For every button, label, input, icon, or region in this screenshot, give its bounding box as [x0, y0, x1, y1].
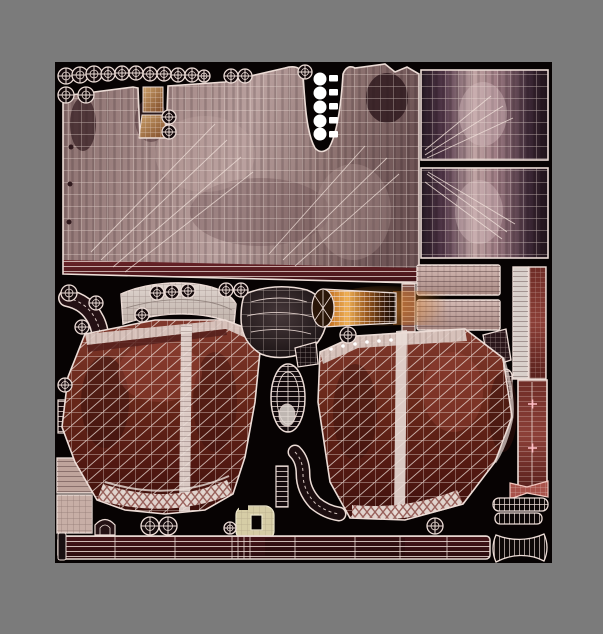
rivet-button — [171, 68, 185, 82]
layer-shirt — [63, 64, 419, 283]
rivet-button — [157, 67, 171, 81]
waist-dot — [353, 342, 357, 346]
strap-light-rows — [513, 267, 528, 379]
rivet-button — [224, 522, 236, 534]
layer-sleeves — [421, 70, 548, 258]
rivet-button — [185, 68, 199, 82]
oval-bottom-pad — [279, 404, 295, 426]
rivet-button — [238, 69, 252, 83]
rivet-button — [298, 65, 312, 79]
placket-buttonhole — [329, 103, 338, 110]
rivet-button — [78, 87, 94, 103]
orange-fade — [393, 291, 449, 325]
buckle-gap — [239, 503, 248, 510]
placket-buttonhole — [329, 117, 338, 124]
layer-shorts-left — [62, 320, 260, 514]
rivet-button — [165, 285, 179, 299]
buckle-grid — [236, 506, 274, 540]
capsule-strip-cols — [495, 513, 542, 524]
placket-button — [314, 73, 327, 86]
layer-right-strips — [510, 267, 548, 499]
layer-orange-arm — [312, 286, 449, 327]
right-leg-tri-grid — [318, 329, 512, 520]
uv-atlas-svg — [55, 62, 552, 563]
rivet-button — [159, 517, 177, 535]
placket-button — [314, 87, 327, 100]
rivet-button — [75, 320, 89, 334]
rivet-button — [86, 66, 102, 82]
barrel-piece-cols — [493, 534, 547, 562]
shirt-button-dot — [68, 182, 73, 187]
rivet-button — [234, 283, 248, 297]
rivet-button — [89, 296, 103, 310]
left-leg-seam-rungs — [179, 325, 192, 512]
left-grid-block-grid — [57, 495, 92, 533]
notch-piece-top-grid — [143, 87, 163, 112]
placket-buttonhole — [329, 89, 338, 96]
placket-buttonhole — [329, 75, 338, 82]
rivet-button — [58, 87, 74, 103]
rivet-button — [162, 125, 176, 139]
rivet-button — [219, 283, 233, 297]
placket-button — [314, 101, 327, 114]
arch-piece — [95, 520, 115, 536]
shirt-button-dot — [67, 220, 72, 225]
waist-dot — [365, 340, 369, 344]
rivet-button — [198, 70, 210, 82]
placket-buttonhole — [329, 131, 338, 138]
rivet-button — [224, 69, 238, 83]
rivet-button — [150, 286, 164, 300]
layer-belt — [58, 533, 490, 560]
rivet-button — [61, 285, 77, 301]
placket-button — [314, 115, 327, 128]
layer-buckle — [236, 503, 274, 540]
cuff-band-ticks — [417, 265, 500, 295]
layer-oval-piece — [271, 364, 305, 432]
waist-dot — [341, 344, 345, 348]
rivet-button — [427, 518, 443, 534]
uv-texture-canvas — [55, 62, 552, 563]
rivet-button — [141, 517, 159, 535]
rivet-button — [101, 67, 115, 81]
rivet-button — [181, 284, 195, 298]
strap-long-rows — [518, 380, 547, 490]
rivet-button — [143, 67, 157, 81]
rivet-button — [135, 308, 149, 322]
belt-rows — [58, 536, 490, 559]
layer-shorts-right — [318, 329, 517, 520]
right-leg-seam — [394, 330, 407, 518]
strap-red-grid — [529, 267, 546, 379]
sleeve-top-grid — [421, 70, 548, 160]
shirt-wire-grid — [63, 64, 419, 283]
shirt-button-dot — [69, 145, 74, 150]
rivet-button — [340, 327, 356, 343]
waist-dot — [389, 338, 393, 342]
rivet-button — [162, 110, 176, 124]
waist-dot — [377, 339, 381, 343]
rivet-button — [129, 66, 143, 80]
layer-bottom-right-pieces — [493, 498, 548, 562]
sleeve-bottom-grid — [421, 168, 548, 258]
rivet-button — [58, 378, 72, 392]
placket-button — [314, 128, 327, 141]
rivet-button — [115, 66, 129, 80]
center-strip-rows — [276, 466, 288, 507]
texture-viewer-background — [0, 0, 603, 634]
belt-left-cap — [58, 533, 66, 560]
